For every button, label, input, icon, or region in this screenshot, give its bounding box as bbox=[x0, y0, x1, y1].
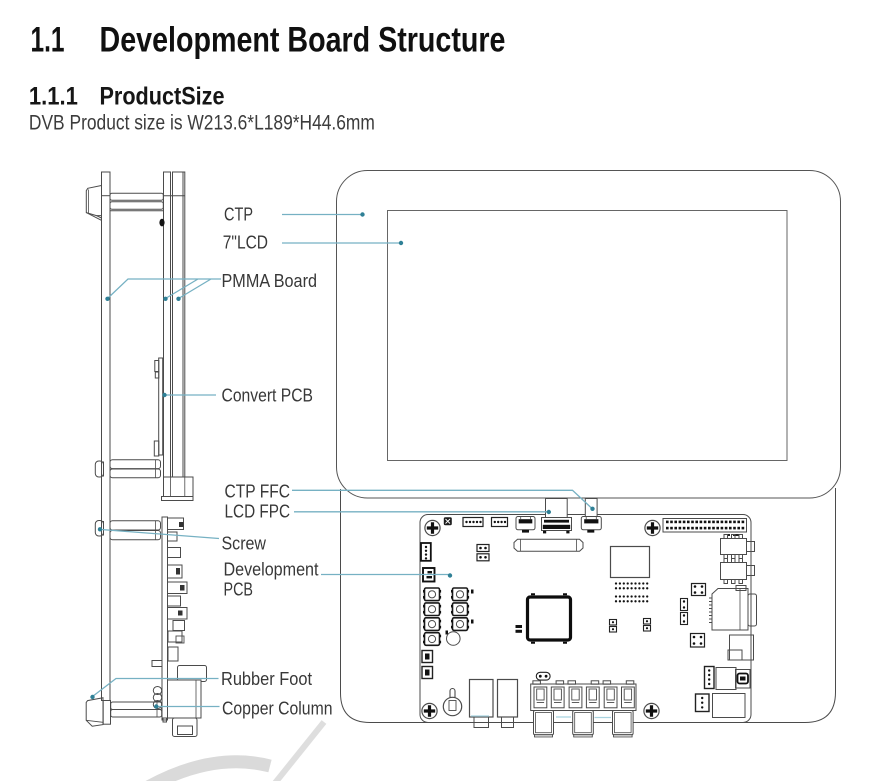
svg-text:PCB: PCB bbox=[224, 579, 254, 600]
svg-text:DVB Product size is W213.6*L18: DVB Product size is W213.6*L189*H44.6mm bbox=[29, 112, 375, 135]
svg-text:LCD FPC: LCD FPC bbox=[225, 501, 291, 522]
svg-text:Copper Column: Copper Column bbox=[222, 698, 333, 719]
svg-text:1.1.1: 1.1.1 bbox=[29, 83, 78, 111]
svg-text:Rubber Foot: Rubber Foot bbox=[221, 668, 312, 689]
svg-text:7"LCD: 7"LCD bbox=[223, 232, 268, 253]
svg-text:ProductSize: ProductSize bbox=[100, 83, 225, 111]
svg-text:CTP: CTP bbox=[224, 204, 253, 225]
svg-text:PMMA Board: PMMA Board bbox=[222, 270, 318, 291]
svg-text:Development: Development bbox=[224, 559, 319, 580]
svg-text:Convert PCB: Convert PCB bbox=[222, 385, 314, 406]
svg-text:1.1: 1.1 bbox=[31, 21, 65, 60]
svg-text:Screw: Screw bbox=[222, 533, 267, 554]
svg-text:Development Board Structure: Development Board Structure bbox=[100, 21, 506, 60]
svg-text:CTP FFC: CTP FFC bbox=[225, 481, 291, 502]
